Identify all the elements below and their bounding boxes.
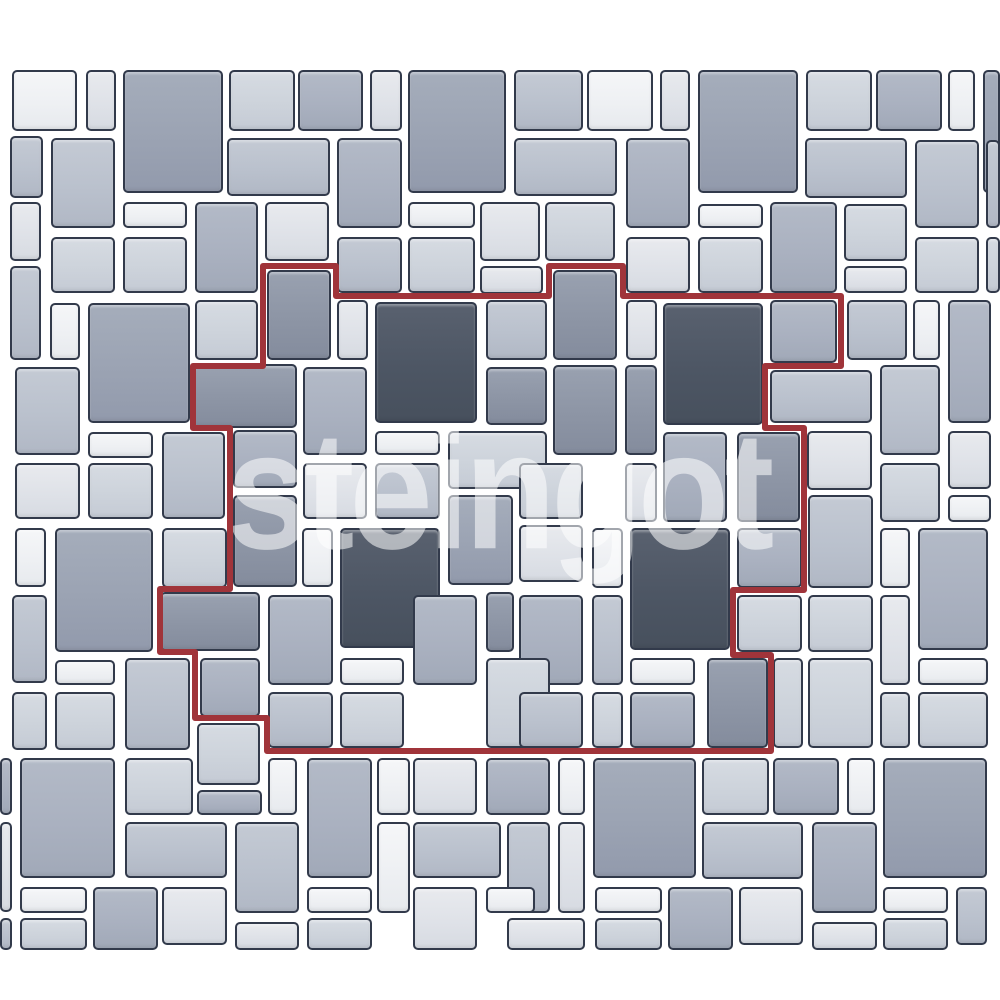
paving-tile: [737, 595, 802, 652]
paving-tile: [558, 822, 585, 913]
paving-tile: [377, 822, 410, 913]
paving-tile: [805, 138, 907, 198]
paving-tile: [918, 692, 988, 748]
paving-tile: [20, 918, 87, 950]
paving-tile: [55, 692, 115, 750]
paving-tile: [770, 202, 837, 293]
paving-tile: [587, 70, 653, 131]
paving-tile: [408, 237, 475, 293]
paving-tile: [227, 138, 330, 196]
paving-tile: [15, 463, 80, 519]
paving-tile: [123, 70, 223, 193]
paving-tile: [12, 70, 77, 131]
paving-tile: [630, 692, 695, 748]
paving-tile: [880, 365, 940, 455]
paving-tile: [880, 463, 940, 522]
paving-tile: [626, 300, 657, 360]
paving-tile: [812, 922, 877, 950]
paving-tile: [880, 692, 910, 748]
paving-tile: [267, 270, 331, 360]
paving-tile: [20, 758, 115, 878]
paving-tile: [558, 758, 585, 815]
paving-tile: [806, 70, 872, 131]
paving-tile: [918, 528, 988, 650]
paving-tile: [486, 758, 550, 815]
paving-tile: [88, 303, 190, 423]
paving-tile: [918, 658, 988, 685]
paving-tile: [595, 887, 662, 913]
paving-tile: [514, 70, 583, 131]
paving-tile: [592, 692, 623, 748]
paving-tile: [698, 237, 763, 293]
paving-tile: [337, 237, 402, 293]
paving-tile: [807, 431, 872, 490]
paving-tile: [55, 660, 115, 685]
paving-tile: [195, 202, 258, 293]
paving-tile: [626, 237, 690, 293]
paving-tile: [808, 658, 873, 748]
paving-tile: [507, 918, 585, 950]
paving-tile: [948, 431, 991, 489]
paving-tile: [698, 204, 763, 228]
paving-tile: [55, 528, 153, 652]
paving-tile: [844, 204, 907, 261]
paving-tile: [630, 658, 695, 685]
paving-tile: [337, 138, 402, 228]
paving-tile: [268, 595, 333, 685]
paving-tile: [337, 300, 368, 360]
paving-tile: [486, 300, 547, 360]
paving-tile: [626, 138, 690, 228]
paving-tile: [235, 822, 299, 913]
paving-tile: [268, 692, 333, 748]
paving-tile: [0, 918, 12, 950]
paving-tile: [876, 70, 942, 131]
paving-tile: [162, 887, 227, 945]
paving-tile: [593, 758, 696, 878]
paving-tile: [668, 887, 733, 950]
paving-tile: [50, 303, 80, 360]
paving-tile: [808, 595, 873, 652]
paving-tile: [20, 887, 87, 913]
paving-tile: [915, 140, 979, 228]
paving-tile: [844, 266, 907, 293]
paving-tile: [915, 237, 979, 293]
paving-tile: [15, 367, 80, 455]
paving-tile: [808, 495, 873, 588]
paving-scheme-image: steingot: [0, 0, 1000, 1000]
paving-tile: [10, 136, 43, 198]
paving-tile: [265, 202, 329, 261]
paving-tile: [883, 758, 987, 878]
paving-tile: [160, 592, 260, 651]
paving-tile: [123, 237, 187, 293]
paving-tile: [486, 887, 535, 913]
paving-tile: [773, 758, 839, 815]
paving-tile: [770, 300, 837, 363]
paving-tile: [12, 692, 47, 750]
paving-tile: [408, 202, 475, 228]
paving-tile: [707, 658, 768, 748]
paving-tile: [592, 595, 623, 685]
paving-tile: [480, 266, 543, 294]
paving-tile: [413, 595, 477, 685]
paving-tile: [307, 758, 372, 878]
paving-tile: [812, 822, 877, 913]
paving-tile: [15, 528, 46, 587]
paving-tile: [986, 237, 1000, 293]
paving-tile: [408, 70, 506, 193]
paving-tile: [698, 70, 798, 193]
paving-tile: [10, 202, 41, 261]
paving-tile: [340, 692, 404, 748]
paving-tile: [413, 887, 477, 950]
paving-tile: [956, 887, 987, 945]
paving-tile: [10, 266, 41, 360]
paving-tile: [770, 370, 872, 423]
paving-tile: [197, 790, 262, 815]
paving-tile: [88, 463, 153, 519]
paving-tile: [88, 432, 153, 458]
paving-tile: [200, 658, 260, 717]
paving-tile: [0, 822, 12, 912]
paving-tile: [702, 758, 769, 815]
paving-tile: [847, 300, 907, 360]
paving-tile: [125, 822, 227, 878]
paving-tile: [235, 922, 299, 950]
paving-tile: [660, 70, 690, 131]
paving-tile: [413, 758, 477, 815]
paving-tile: [545, 202, 615, 261]
paving-tile: [480, 202, 540, 261]
paving-tile: [595, 918, 662, 950]
paving-tile: [307, 918, 372, 950]
paving-tile: [486, 592, 514, 652]
paving-tile: [86, 70, 116, 131]
paving-tile: [948, 70, 975, 131]
paving-tile: [948, 300, 991, 423]
paving-tile: [883, 918, 948, 950]
paving-tile: [123, 202, 187, 228]
paving-tile: [125, 658, 190, 750]
paving-tile: [93, 887, 158, 950]
paving-tile: [880, 528, 910, 588]
paving-tile: [553, 270, 617, 360]
paving-tile: [340, 658, 404, 685]
paving-tile: [12, 595, 47, 683]
paving-tile: [519, 692, 583, 748]
paving-tile: [847, 758, 875, 815]
paving-tile: [883, 887, 948, 913]
paving-tile: [162, 432, 225, 519]
paving-tile: [197, 723, 260, 785]
paving-tile: [51, 237, 115, 293]
paving-tile: [370, 70, 402, 131]
paving-tile: [514, 138, 617, 196]
paving-tile: [913, 300, 940, 360]
paving-tile: [986, 140, 1000, 228]
paving-tile: [739, 887, 803, 945]
paving-tile: [702, 822, 803, 879]
paving-tile: [298, 70, 363, 131]
paving-tile: [195, 300, 258, 360]
paving-tile: [51, 138, 115, 228]
paving-tile: [948, 495, 991, 522]
paving-tile: [377, 758, 410, 815]
paving-tile: [125, 758, 193, 815]
steingot-watermark: steingot: [226, 406, 769, 574]
paving-tile: [162, 528, 227, 588]
paving-tile: [229, 70, 295, 131]
paving-tile: [773, 658, 803, 748]
paving-tile: [0, 758, 12, 815]
paving-tile: [880, 595, 910, 685]
paving-tile: [307, 887, 372, 913]
paving-tile: [413, 822, 501, 878]
paving-tile: [268, 758, 297, 815]
